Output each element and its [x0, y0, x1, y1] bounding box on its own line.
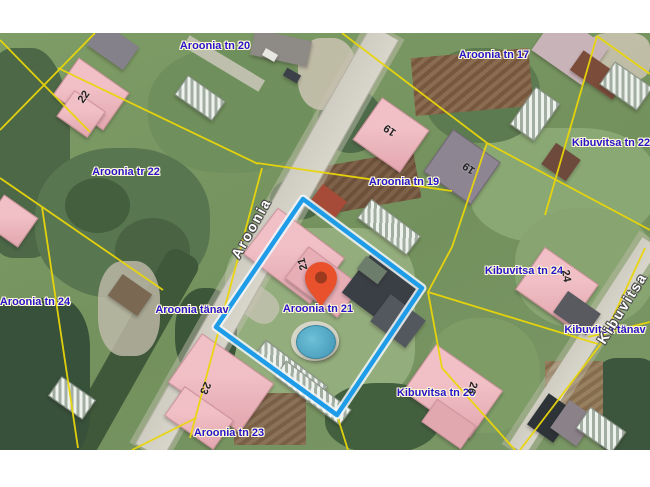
top-margin	[0, 0, 650, 33]
terrain-patch	[0, 298, 90, 450]
building-top-gray	[87, 33, 139, 70]
location-pin-icon[interactable]	[305, 262, 337, 310]
bottom-margin	[0, 450, 650, 487]
map-screenshot: Aroonia tn 20Aroonia tn 17Aroonia tr 22K…	[0, 0, 650, 487]
garden-rows	[411, 48, 534, 116]
map-canvas[interactable]	[0, 33, 650, 450]
terrain-patch	[65, 178, 130, 233]
pool	[296, 325, 336, 359]
